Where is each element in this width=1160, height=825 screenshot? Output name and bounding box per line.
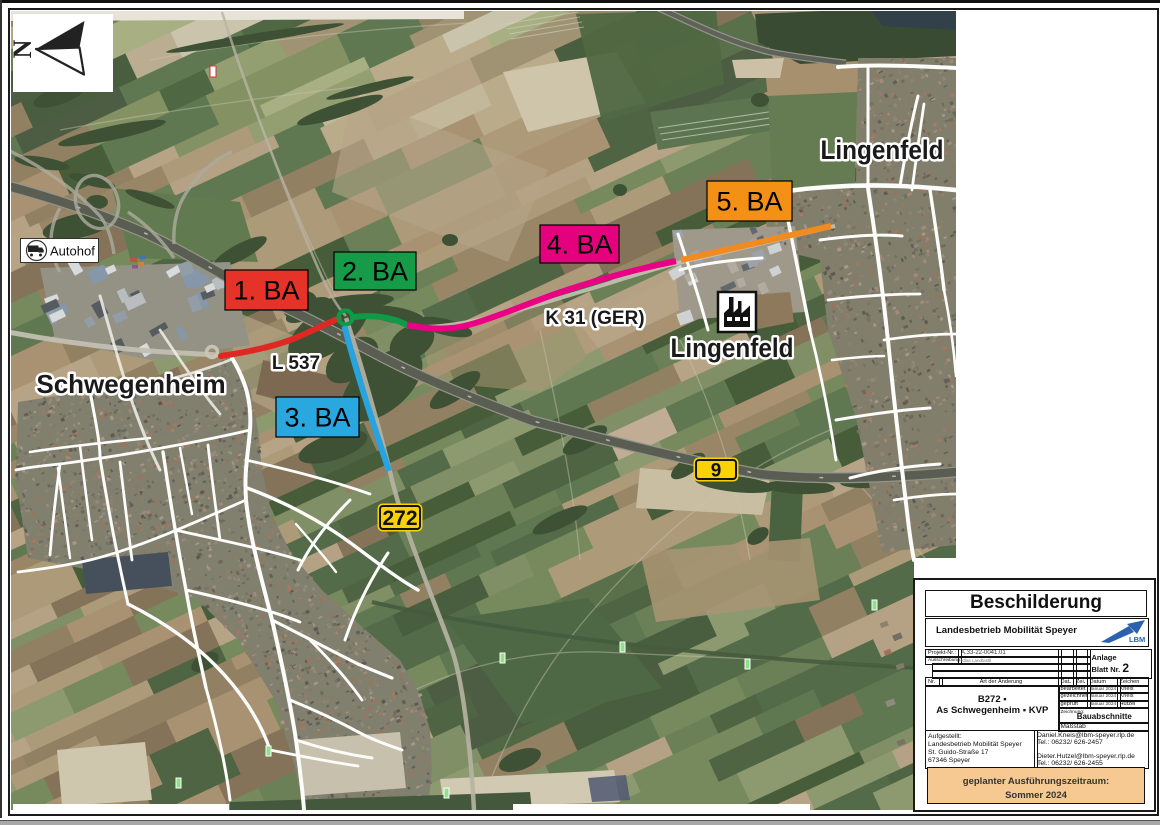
svg-text:9: 9 xyxy=(711,460,722,481)
svg-text:4. BA: 4. BA xyxy=(546,230,612,260)
svg-text:5. BA: 5. BA xyxy=(716,187,782,217)
svg-text:Lingenfeld: Lingenfeld xyxy=(671,333,794,363)
svg-text:Lingenfeld: Lingenfeld xyxy=(821,135,944,165)
svg-text:K 31 (GER): K 31 (GER) xyxy=(545,308,644,329)
svg-text:L 537: L 537 xyxy=(272,353,320,374)
svg-text:Autohof: Autohof xyxy=(50,244,95,259)
svg-text:LBM: LBM xyxy=(1129,635,1145,643)
svg-text:1. BA: 1. BA xyxy=(233,276,299,306)
svg-text:N: N xyxy=(8,39,37,58)
svg-text:Schwegenheim: Schwegenheim xyxy=(36,369,225,399)
svg-text:2. BA: 2. BA xyxy=(342,257,408,287)
svg-text:3. BA: 3. BA xyxy=(284,403,350,433)
svg-text:272: 272 xyxy=(382,507,417,530)
